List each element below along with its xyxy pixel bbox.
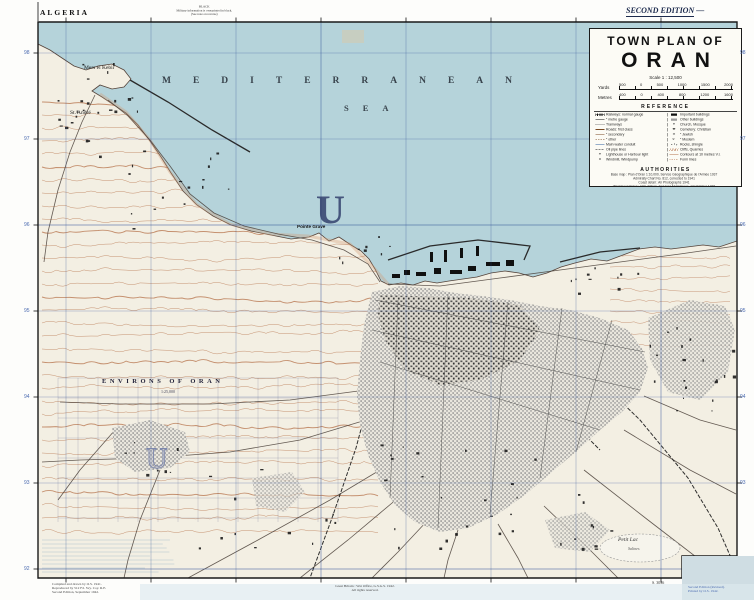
sheet-number-note: S. 3036 [652,580,664,585]
sheet-bottom-shadow [140,584,754,600]
map-sheet: ALGERIA SECOND EDITION — BLACKMilitary i… [0,0,754,600]
cut-corner-note: Second Edition (Revised).Printed by O.S.… [688,585,753,593]
sea-name-label-2: SEA [344,103,403,113]
grid-number-left: 97 [24,136,30,142]
grid-number-left: 92 [24,566,30,572]
grid-number-left: 93 [24,480,30,486]
title-box: TOWN PLAN OF ORAN Scale 1 : 12,500 Yards… [589,28,742,187]
label-environs-scale: 1:25,000 [118,389,218,394]
scale-bar: Yards5000500100015002000 [598,83,733,90]
petit-lac-outline [600,534,680,562]
authorities-lines: Base map : Plan d'Oran 1:10,000, Service… [590,173,738,187]
map-title-line1: TOWN PLAN OF [590,34,741,48]
grid-square-letter-land: U [146,444,168,474]
grid-number-right: 98 [740,50,746,56]
grid-number-left: 95 [24,308,30,314]
grid-number-right: 97 [740,136,746,142]
scale-bar: Metres400040080012001600 [598,93,733,100]
reference-heading: REFERENCE [590,104,741,110]
sea-name-label: MEDITERRANEAN [162,76,534,86]
imprint-left: Compiled and drawn by O.S. 1941.Reproduc… [52,582,202,594]
scale-text: Scale 1 : 12,500 [590,75,741,80]
edition-text: SECOND EDITION [626,6,694,17]
label-salines: Salines [628,546,640,551]
map-title-line2: ORAN [590,49,741,73]
grid-number-right: 95 [740,308,746,314]
label-petit-lac: Petit Lac [618,537,638,543]
label-st-andre: St. André [70,110,91,116]
scale-bars: Yards5000500100015002000Metres4000400800… [590,83,741,100]
grid-number-left: 98 [24,50,30,56]
grid-number-right: 96 [740,222,746,228]
edition-dash: — [696,6,704,15]
label-mers-el-kebir: Mers el Kebir [84,65,115,71]
paper-stamp-mark [342,30,364,43]
edition-label: SECOND EDITION — [626,6,704,15]
label-pointe-grave: Pointe Grave [297,224,325,229]
top-margin-note: BLACKMilitary information is overprinted… [148,5,261,16]
grid-number-left: 94 [24,394,30,400]
country-label: ALGERIA [40,8,89,17]
imprint-center: Great Britain : War Office, G.S.G.S. 194… [300,584,430,592]
grid-number-right: 94 [740,394,746,400]
legend: Railways: normal gaugeImportant building… [594,111,737,164]
grid-number-left: 96 [24,222,30,228]
grid-number-right: 93 [740,480,746,486]
label-environs-of-oran: ENVIRONS OF ORAN [102,378,224,385]
